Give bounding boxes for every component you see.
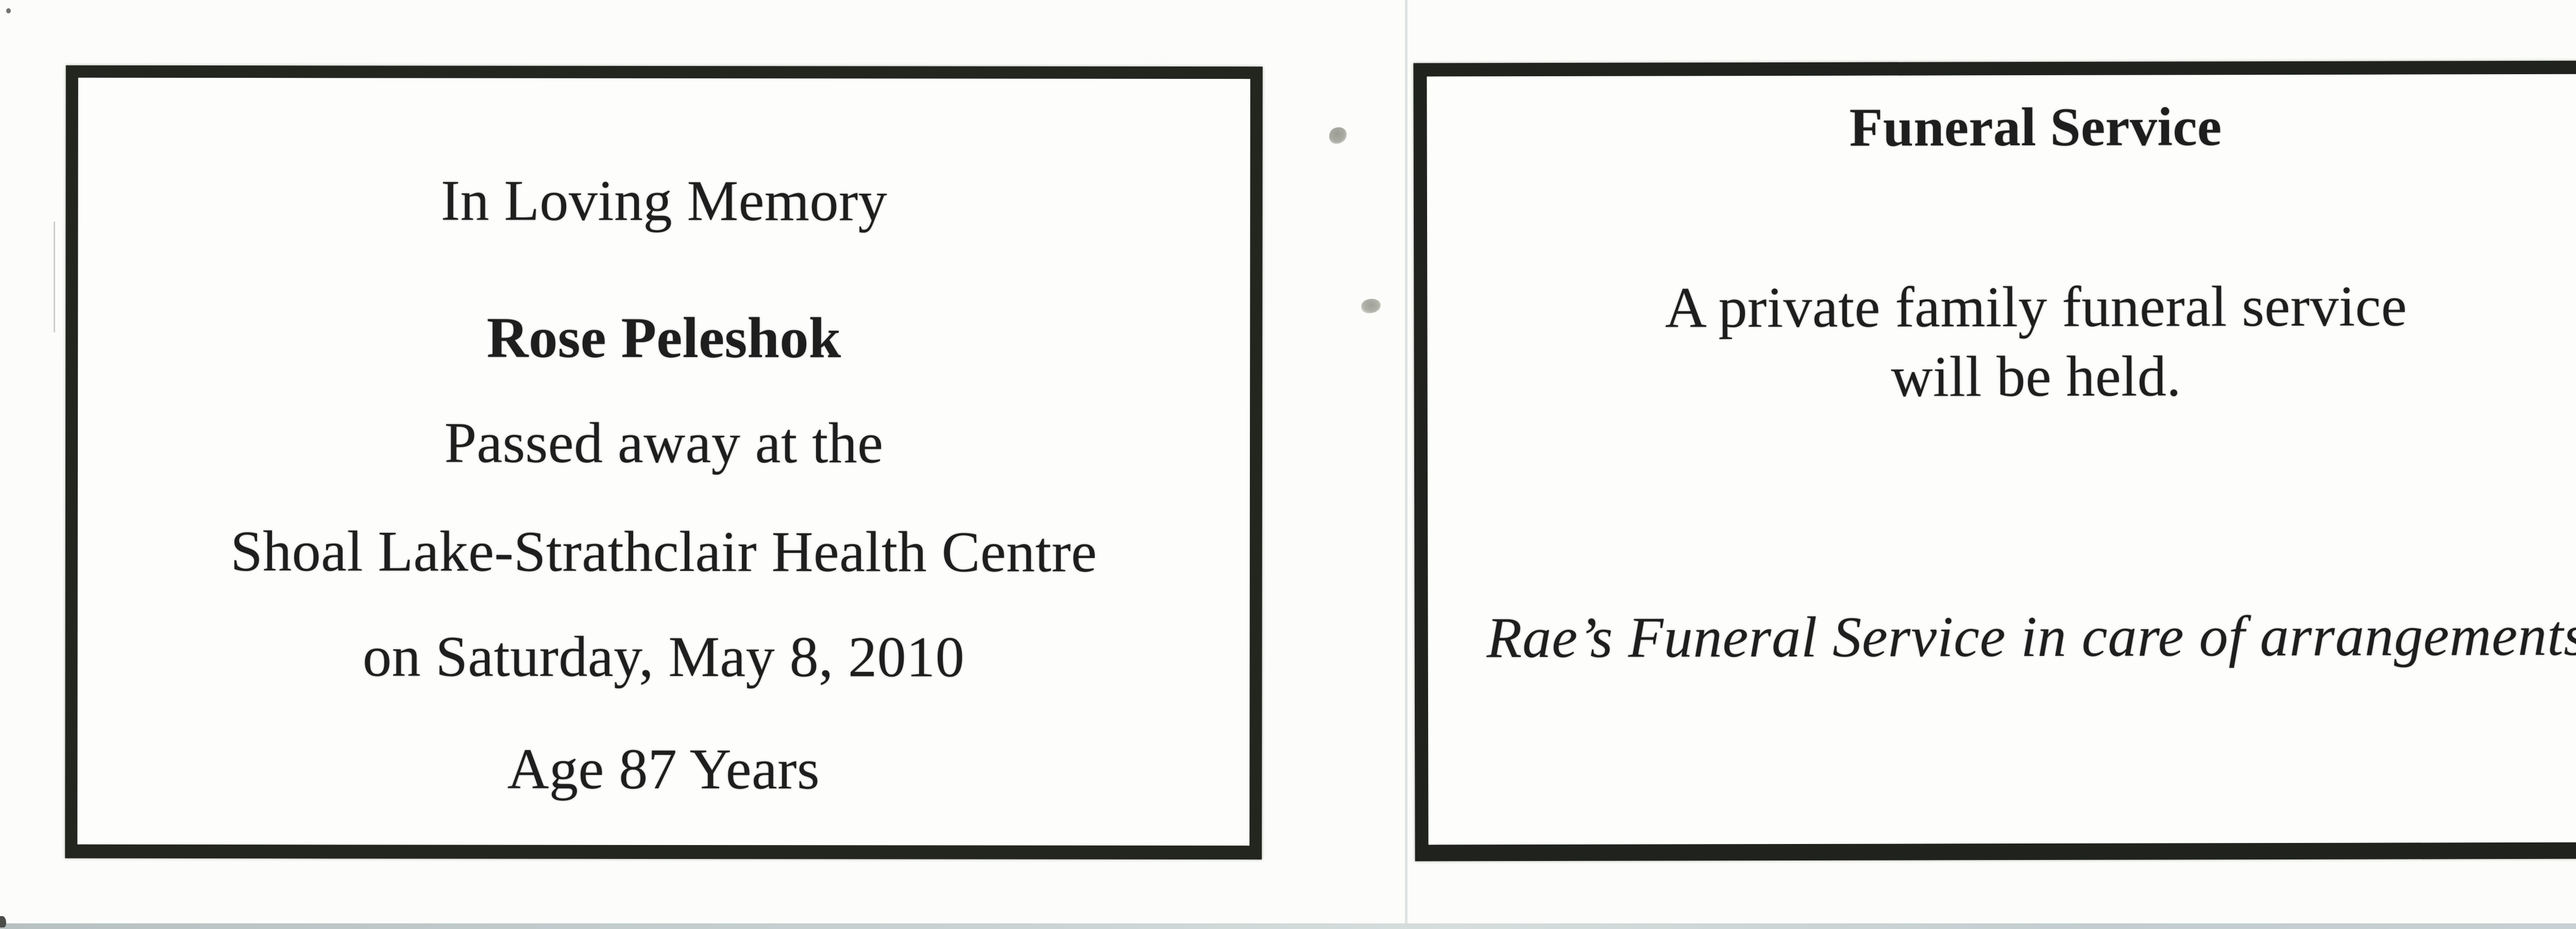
dust-speck-upper <box>1329 127 1347 144</box>
deceased-name: Rose Peleshok <box>78 306 1250 371</box>
top-left-edge-dot <box>6 8 11 13</box>
health-centre-line: Shoal Lake-Strathclair Health Centre <box>78 519 1250 585</box>
private-service-line-2: will be held. <box>1428 344 2576 411</box>
date-of-death-line: on Saturday, May 8, 2010 <box>78 624 1250 690</box>
funeral-service-title: Funeral Service <box>1427 96 2576 160</box>
arrangements-note: Rae’s Funeral Service in care of arrange… <box>1428 604 2576 671</box>
age-line: Age 87 Years <box>77 737 1249 803</box>
memorial-card: In Loving Memory Rose Peleshok Passed aw… <box>65 65 1263 859</box>
passed-away-line: Passed away at the <box>78 411 1250 477</box>
dust-speck-lower <box>1361 299 1381 313</box>
scan-hairline-artifact <box>54 222 55 332</box>
funeral-service-card: Funeral Service A private family funeral… <box>1413 60 2576 861</box>
bottom-left-edge-speck <box>0 916 6 927</box>
private-service-line-1: A private family funeral service <box>1427 274 2576 341</box>
memorial-heading: In Loving Memory <box>78 168 1250 234</box>
card-fold-line <box>1405 0 1408 929</box>
scanner-edge-strip <box>0 923 2576 929</box>
scanned-memorial-card-page: In Loving Memory Rose Peleshok Passed aw… <box>0 0 2576 929</box>
